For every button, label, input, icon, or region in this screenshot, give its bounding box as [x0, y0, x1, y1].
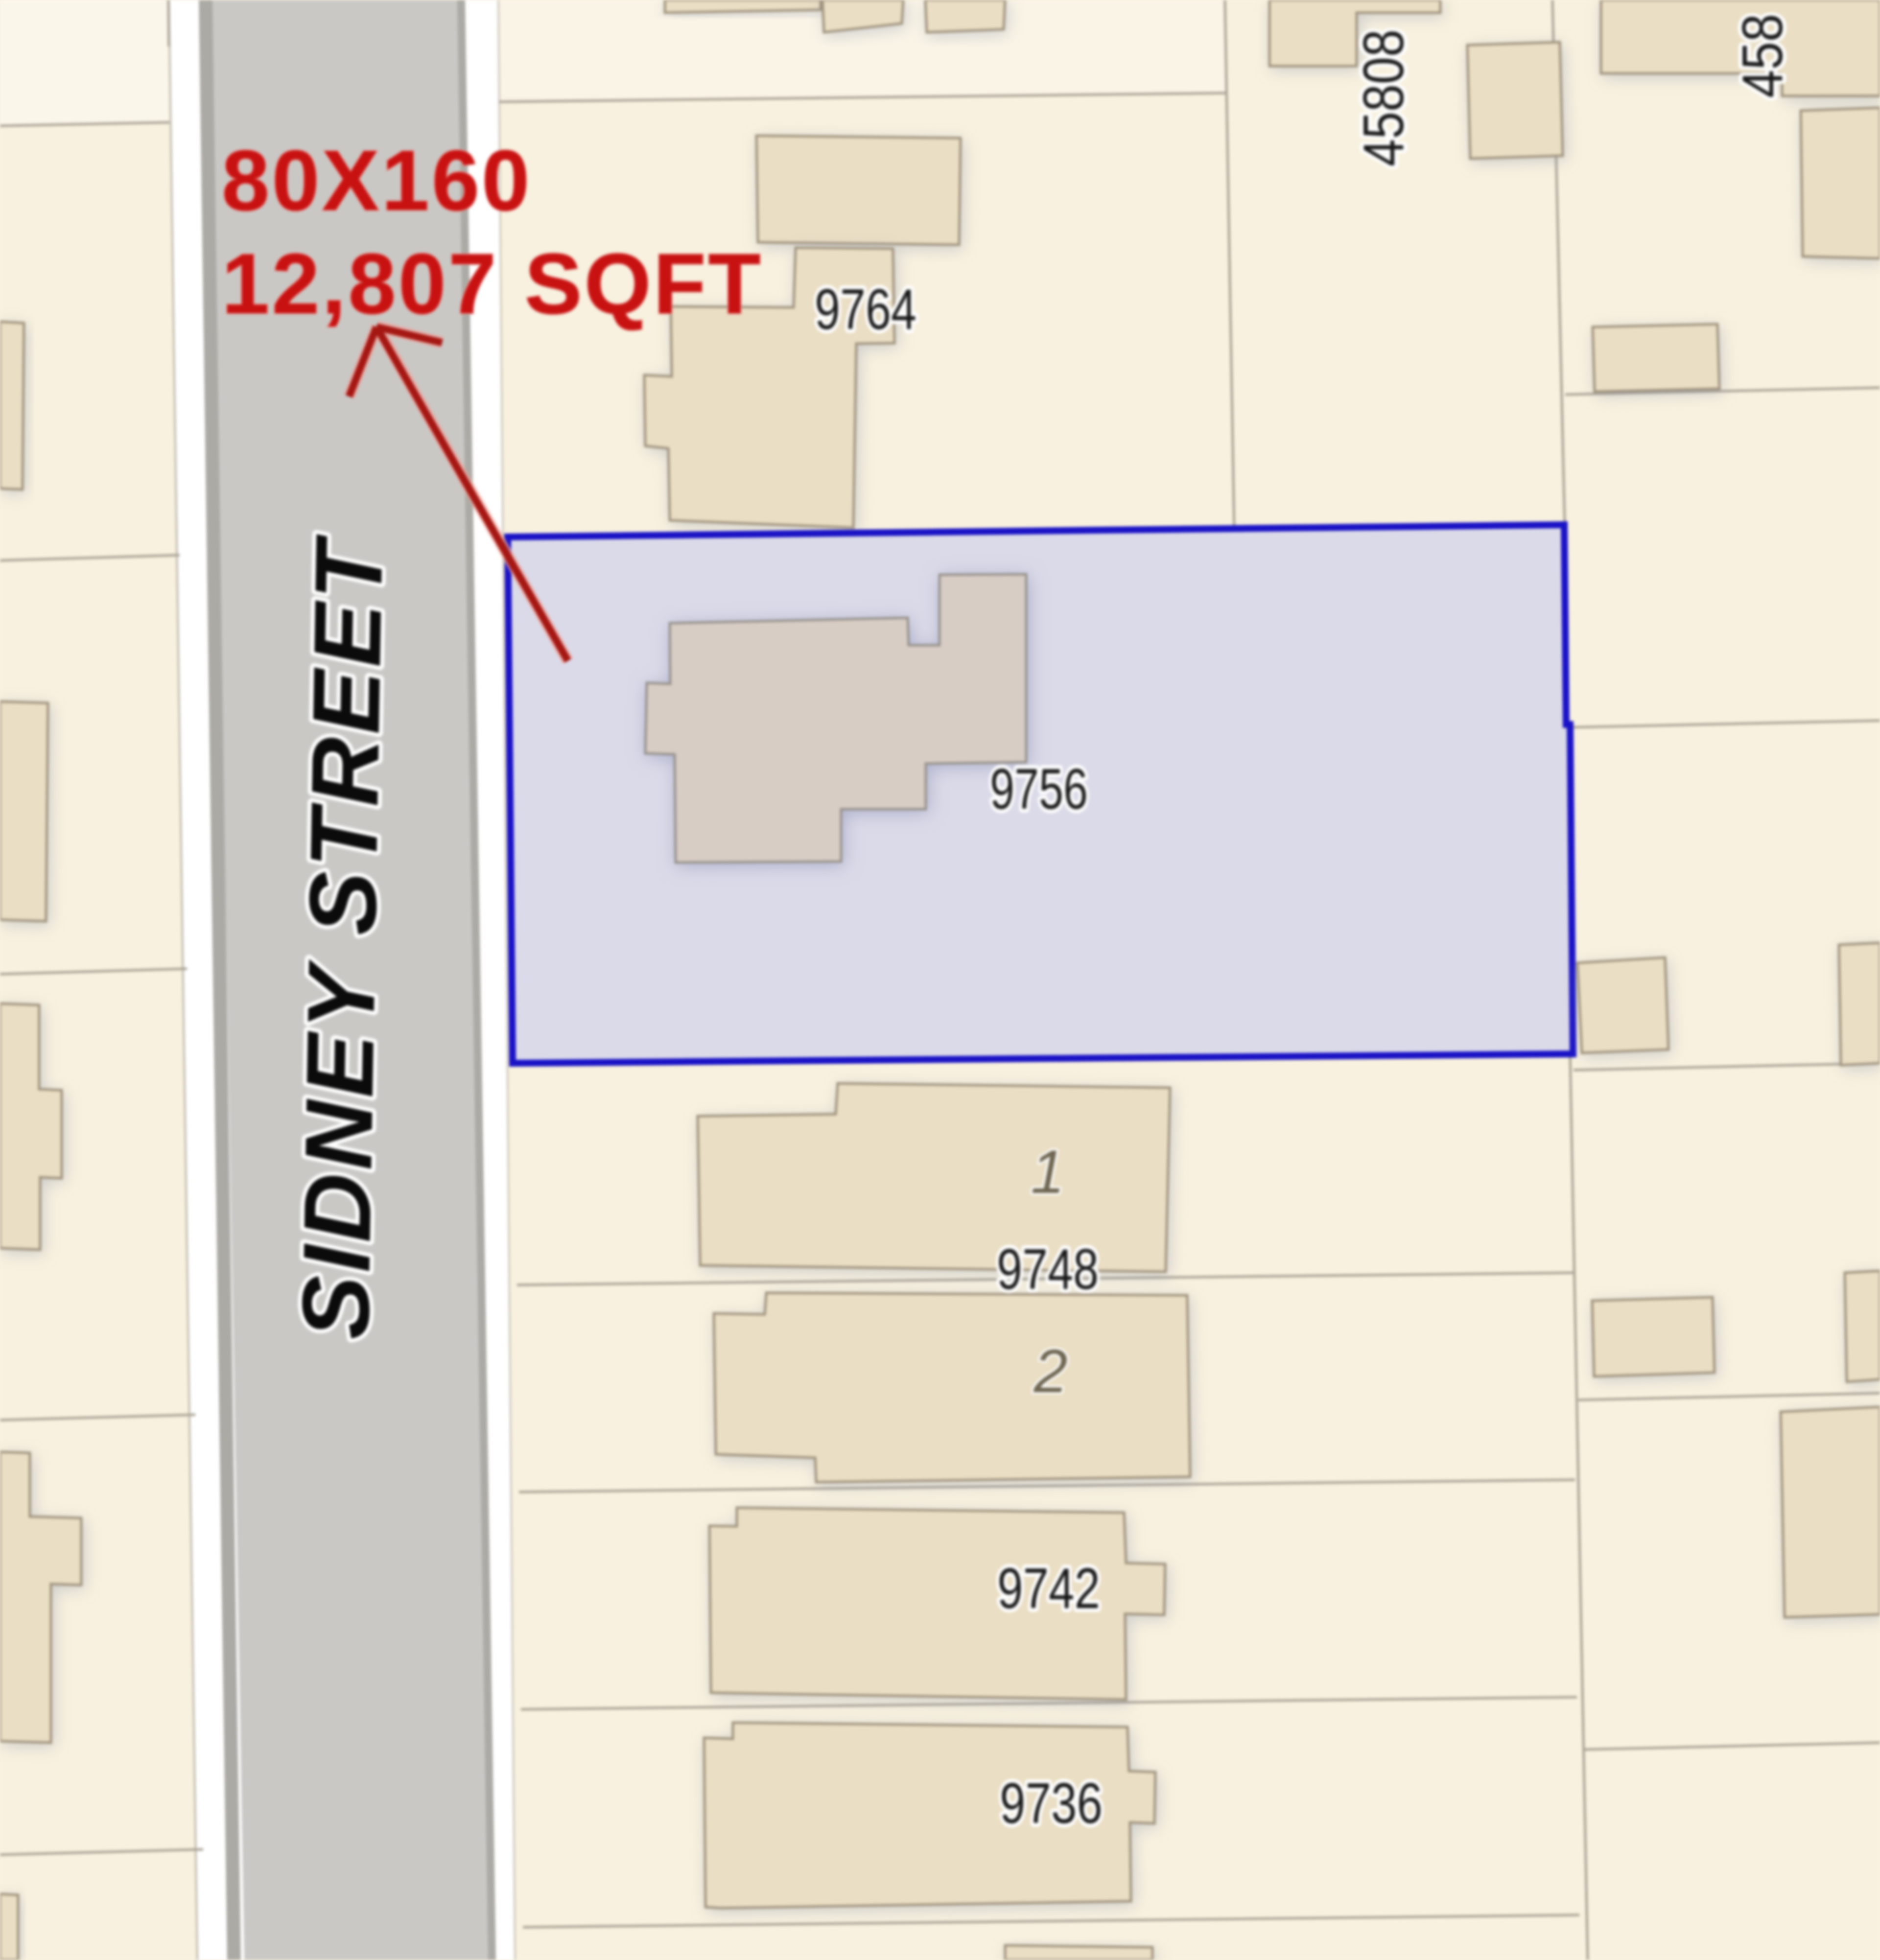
svg-text:9736: 9736 — [1000, 1771, 1103, 1835]
svg-text:1: 1 — [1031, 1138, 1065, 1206]
svg-text:9764: 9764 — [815, 277, 916, 341]
svg-text:SIDNEY STREET: SIDNEY STREET — [282, 534, 403, 1340]
svg-text:2: 2 — [1033, 1337, 1068, 1405]
svg-text:12,807 SQFT: 12,807 SQFT — [222, 236, 763, 332]
svg-text:80X160: 80X160 — [222, 133, 532, 229]
svg-text:458: 458 — [1730, 14, 1794, 98]
svg-text:9748: 9748 — [997, 1237, 1099, 1301]
svg-text:45808: 45808 — [1351, 29, 1415, 166]
svg-text:9756: 9756 — [990, 757, 1088, 821]
svg-text:9742: 9742 — [997, 1556, 1100, 1620]
